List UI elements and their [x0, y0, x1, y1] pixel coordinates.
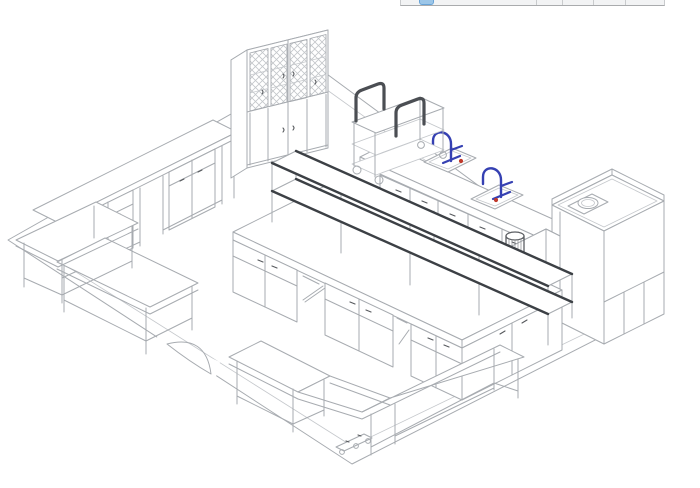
fume-hood	[552, 169, 664, 344]
drawing-canvas	[0, 0, 700, 488]
cabinet-left-side	[231, 50, 247, 178]
tall-storage-cabinets	[231, 30, 328, 178]
lab-furniture-isometric-drawing	[0, 0, 700, 488]
toolbar-fragment	[400, 0, 665, 6]
glass-door-pane-4	[310, 35, 326, 97]
glass-door-pane-3	[290, 40, 307, 102]
toolbar-active-button[interactable]	[419, 0, 434, 5]
toolbar-cell-divider	[593, 0, 594, 5]
floor-dolly	[336, 434, 372, 454]
toolbar-cell-divider	[536, 0, 537, 5]
glass-door-pane-1	[250, 49, 268, 112]
toolbar-cell-divider	[625, 0, 626, 5]
toolbar-cell-divider	[562, 0, 563, 5]
glass-door-pane-2	[271, 44, 287, 106]
tap-marker-2	[494, 198, 498, 202]
tap-marker-1	[459, 159, 463, 163]
